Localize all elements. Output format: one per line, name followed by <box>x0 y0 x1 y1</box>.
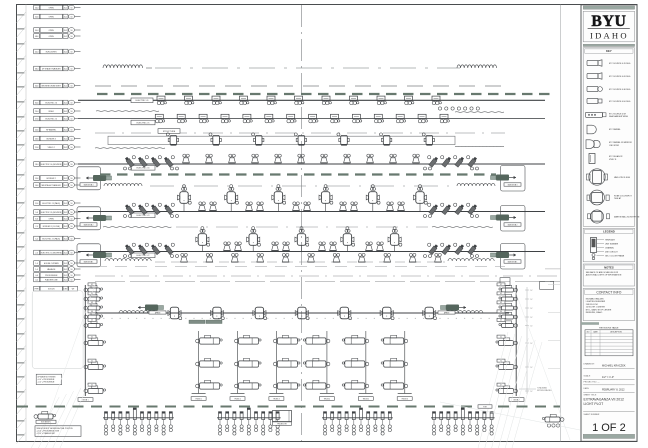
svg-text:10: 10 <box>71 212 73 214</box>
svg-text:18-0: 18-0 <box>35 164 38 166</box>
svg-text:PROSCENIUM: PROSCENIUM <box>45 275 58 277</box>
svg-text:20-1: 20-1 <box>64 218 67 220</box>
svg-text:MIDSTAGE TRAVELER: MIDSTAGE TRAVELER <box>42 184 62 187</box>
svg-text:43: 43 <box>91 302 93 304</box>
svg-text:TRUSS 3: TRUSS 3 <box>273 398 280 400</box>
svg-text:1'-6": 1'-6" <box>530 299 533 301</box>
svg-text:FEBRUARY 8, 2012: FEBRUARY 8, 2012 <box>602 389 625 392</box>
svg-text:20-1: 20-1 <box>64 238 67 240</box>
svg-text:20-1: 20-1 <box>64 279 67 281</box>
svg-text:ELECTRIC #6: ELECTRIC #6 <box>136 100 150 102</box>
svg-text:ELECTRIC #4: ELECTRIC #4 <box>137 168 151 170</box>
svg-text:BYU: BYU <box>591 13 626 30</box>
svg-text:7-0: 7-0 <box>35 226 38 228</box>
svg-text:DATE:: DATE: <box>584 387 590 390</box>
svg-text:10: 10 <box>71 147 73 149</box>
svg-text:MICHAEL KRACZEK: MICHAEL KRACZEK <box>586 298 605 301</box>
svg-text:STRUCTURE: STRUCTURE <box>163 131 176 133</box>
svg-text:10: 10 <box>71 263 73 265</box>
svg-text:41: 41 <box>91 284 93 286</box>
svg-text:44: 44 <box>91 311 93 313</box>
svg-text:1'-6": 1'-6" <box>530 326 533 328</box>
svg-text:BROKEN DRUM SKIRT: BROKEN DRUM SKIRT <box>42 85 62 87</box>
svg-text:10: 10 <box>71 51 73 53</box>
svg-text:CIE FILTER: CIE FILTER <box>609 145 620 147</box>
svg-text:OPEN: OPEN <box>49 218 55 220</box>
svg-text:20-1: 20-1 <box>64 111 67 113</box>
svg-text:10: 10 <box>71 118 73 120</box>
svg-text:1'-6": 1'-6" <box>530 308 533 310</box>
svg-text:SHEET TITLE:: SHEET TITLE: <box>584 395 598 397</box>
svg-text:52-6: 52-6 <box>35 16 38 18</box>
svg-text:20-1: 20-1 <box>64 185 67 187</box>
svg-text:CHANNEL: CHANNEL <box>605 246 614 249</box>
svg-text:41: 41 <box>500 284 502 286</box>
svg-text:208-555-1234: 208-555-1234 <box>586 304 598 306</box>
svg-text:0-0: 0-0 <box>35 279 38 281</box>
svg-text:RF BARREL: RF BARREL <box>46 128 56 131</box>
svg-text:20-1: 20-1 <box>64 138 67 140</box>
svg-text:10: 10 <box>71 185 73 187</box>
svg-text:20-1: 20-1 <box>64 164 67 166</box>
svg-text:ELECTRIC #1 (MOVERS): ELECTRIC #1 (MOVERS) <box>41 252 62 254</box>
svg-text:34-6: 34-6 <box>35 85 38 87</box>
svg-text:15-6: 15-6 <box>35 178 38 180</box>
svg-text:OPEN: OPEN <box>49 7 55 9</box>
svg-text:20-1: 20-1 <box>64 68 67 70</box>
svg-text:10: 10 <box>71 85 73 87</box>
svg-text:SEACHANGER WING: SEACHANGER WING <box>609 115 628 118</box>
svg-text:BORDER 2: BORDER 2 <box>47 178 56 180</box>
svg-text:VARI-LITE VL3000: VARI-LITE VL3000 <box>614 176 630 179</box>
svg-text:1'-6": 1'-6" <box>530 317 533 319</box>
svg-text:20-1: 20-1 <box>64 85 67 87</box>
svg-text:ADDITIONAL LIGHTS OF INFORMATI: ADDITIONAL LIGHTS OF INFORMATION <box>586 273 622 276</box>
svg-text:10: 10 <box>71 252 73 254</box>
svg-text:1'-6": 1'-6" <box>530 290 533 292</box>
svg-text:ETC PARNEL W/ MIRROR: ETC PARNEL W/ MIRROR <box>609 141 632 144</box>
svg-text:OPEN: OPEN <box>49 16 55 18</box>
svg-text:SIDE BOOM 1: SIDE BOOM 1 <box>84 261 94 263</box>
svg-text:ETC SOURCE 4-26 DEG: ETC SOURCE 4-26 DEG <box>609 76 631 78</box>
svg-text:44: 44 <box>500 311 502 313</box>
svg-text:GOODS: GOODS <box>48 289 55 291</box>
svg-text:10: 10 <box>71 203 73 205</box>
svg-text:10: 10 <box>71 138 73 140</box>
svg-text:ELECTRIC #4 (MOVERS): ELECTRIC #4 (MOVERS) <box>41 164 62 166</box>
svg-text:10: 10 <box>71 30 73 32</box>
svg-text:SIDE BOOM 2: SIDE BOOM 2 <box>84 224 94 226</box>
svg-text:BORDER 3: BORDER 3 <box>47 138 56 140</box>
svg-text:PROJECTOR: PROJECTOR <box>277 423 287 425</box>
svg-text:50-0: 50-0 <box>35 30 38 32</box>
svg-text:20-1: 20-1 <box>64 263 67 265</box>
svg-text:ETC PARNEL: ETC PARNEL <box>609 128 621 131</box>
svg-text:PROJECT NO. —: PROJECT NO. — <box>584 382 600 384</box>
svg-text:1/2" = 1'-0": 1/2" = 1'-0" <box>602 376 614 379</box>
svg-text:ELECTRIC #3: ELECTRIC #3 <box>137 215 151 217</box>
svg-text:OPEN: OPEN <box>49 36 55 38</box>
svg-text:BYU - IDAHO STOP CENTER: BYU - IDAHO STOP CENTER <box>586 308 612 311</box>
svg-text:SIDE BOOM 2: SIDE BOOM 2 <box>508 224 518 226</box>
svg-text:GEL / COLOR FRAME: GEL / COLOR FRAME <box>605 254 625 257</box>
svg-text:56-0: 56-0 <box>35 7 38 9</box>
svg-text:0-6: 0-6 <box>35 275 38 277</box>
svg-text:10: 10 <box>71 164 73 166</box>
svg-text:21-6: 21-6 <box>35 147 38 149</box>
svg-text:20-1: 20-1 <box>64 212 67 214</box>
svg-text:LEGEND: LEGEND <box>603 230 615 234</box>
svg-text:OPEN: OPEN <box>49 30 55 32</box>
svg-text:20-1: 20-1 <box>64 36 67 38</box>
svg-text:MICHAEL KRACZEK: MICHAEL KRACZEK <box>602 365 626 368</box>
svg-text:1 OF 2: 1 OF 2 <box>592 422 626 434</box>
svg-text:27-6: 27-6 <box>35 118 38 120</box>
svg-text:43: 43 <box>500 302 502 304</box>
svg-text:RUN LIGHTS: RUN LIGHTS <box>46 51 58 53</box>
svg-text:20-1: 20-1 <box>64 16 67 18</box>
svg-text:VALANCE: VALANCE <box>47 268 56 271</box>
svg-text:UNIT NUMBER: UNIT NUMBER <box>605 243 619 245</box>
svg-text:SHEET NUMBER: SHEET NUMBER <box>584 414 600 416</box>
svg-text:HOUSE CURTAIN: HOUSE CURTAIN <box>44 262 59 265</box>
svg-text:10: 10 <box>71 16 73 18</box>
svg-text:IDAHO: IDAHO <box>590 31 629 41</box>
svg-text:10 SOUTH 1 CENTER: 10 SOUTH 1 CENTER <box>586 307 606 309</box>
svg-text:FOH: FOH <box>483 406 486 408</box>
svg-text:PLASTER LINE: PLASTER LINE <box>45 278 58 281</box>
svg-text:20-1: 20-1 <box>64 269 67 271</box>
svg-text:DIST: DIST <box>64 289 68 291</box>
svg-text:10: 10 <box>71 7 73 9</box>
svg-text:20-1: 20-1 <box>64 275 67 277</box>
svg-text:700E AT: 700E AT <box>614 197 622 200</box>
svg-text:20-1: 20-1 <box>64 129 67 131</box>
svg-text:SCALE:: SCALE: <box>584 374 592 377</box>
svg-text:10: 10 <box>71 36 73 38</box>
svg-text:30-6: 30-6 <box>35 102 38 104</box>
svg-text:20-1: 20-1 <box>64 226 67 228</box>
svg-text:1'-6": 1'-6" <box>530 391 533 393</box>
svg-text:9-6: 9-6 <box>35 212 38 214</box>
svg-text:11-0: 11-0 <box>35 203 38 205</box>
svg-text:20-1: 20-1 <box>64 178 67 180</box>
svg-text:LIGHT PLOT: LIGHT PLOT <box>584 402 604 406</box>
svg-text:DIM / CIRCUIT: DIM / CIRCUIT <box>605 251 619 253</box>
svg-text:10: 10 <box>71 269 73 271</box>
svg-text:TRUSS 5: TRUSS 5 <box>363 398 370 400</box>
svg-text:WT: WT <box>72 289 75 291</box>
svg-text:23-6: 23-6 <box>35 138 38 140</box>
svg-text:5-0: 5-0 <box>35 238 38 240</box>
svg-text:10: 10 <box>71 111 73 113</box>
svg-text:38-0: 38-0 <box>35 68 38 70</box>
svg-text:20-1: 20-1 <box>64 147 67 149</box>
svg-text:51: 51 <box>500 336 502 338</box>
svg-text:ETC SELADOR: ETC SELADOR <box>609 155 623 158</box>
svg-text:20-1: 20-1 <box>64 51 67 53</box>
svg-text:LIGHTING DESIGNER: LIGHTING DESIGNER <box>586 301 606 303</box>
svg-text:TEMPLATE: TEMPLATE <box>605 238 616 241</box>
svg-text:SIDE BOOM 3: SIDE BOOM 3 <box>508 184 518 186</box>
svg-text:ELECTRIC #2: ELECTRIC #2 <box>137 255 151 257</box>
svg-text:1'-6": 1'-6" <box>530 343 533 345</box>
svg-text:ELECTRIC #5: ELECTRIC #5 <box>46 118 57 120</box>
svg-text:20-1: 20-1 <box>64 102 67 104</box>
svg-text:2-6: 2-6 <box>35 252 38 254</box>
svg-text:TRUSS 2: TRUSS 2 <box>234 398 241 400</box>
svg-text:10: 10 <box>71 178 73 180</box>
svg-text:51: 51 <box>91 360 93 362</box>
svg-text:ETC SOURCE 4-19 DEG: ETC SOURCE 4-19 DEG <box>609 63 631 65</box>
svg-text:44-0: 44-0 <box>35 51 38 53</box>
svg-text:UP STAGE TRAVELER: UP STAGE TRAVELER <box>42 67 61 70</box>
svg-text:ELECTRIC #3 (MOVERS): ELECTRIC #3 (MOVERS) <box>41 212 62 214</box>
svg-text:REXBURG, IDAHO: REXBURG, IDAHO <box>586 311 603 314</box>
svg-text:ELECTRIC #2 (PALS): ELECTRIC #2 (PALS) <box>42 237 60 240</box>
svg-text:10: 10 <box>71 218 73 220</box>
svg-text:VIDEO 2: VIDEO 2 <box>48 147 55 149</box>
svg-text:+0'-0" = PROSCENIUM: +0'-0" = PROSCENIUM <box>38 379 55 381</box>
svg-text:DESCRIPTION: DESCRIPTION <box>610 331 622 333</box>
svg-text:SIDE BOOM 4: SIDE BOOM 4 <box>84 184 94 186</box>
svg-text:10: 10 <box>71 226 73 228</box>
svg-text:29-0: 29-0 <box>35 111 38 113</box>
svg-text:ELECTRIC #3 (PALS): ELECTRIC #3 (PALS) <box>42 202 60 205</box>
svg-text:20-1: 20-1 <box>64 203 67 205</box>
svg-text:CONTACT INFO: CONTACT INFO <box>596 290 621 294</box>
svg-text:45: 45 <box>91 320 93 322</box>
svg-text:NOTES: NOTES <box>604 265 614 269</box>
svg-text:BOOM 1: BOOM 1 <box>83 399 89 401</box>
svg-text:10: 10 <box>71 275 73 277</box>
svg-text:25-6: 25-6 <box>35 129 38 131</box>
svg-text:48-6: 48-6 <box>35 36 38 38</box>
svg-text:+20'-0" = PROSCENIUM ZONE: +20'-0" = PROSCENIUM ZONE <box>37 431 59 433</box>
svg-text:ELECTRIC #6: ELECTRIC #6 <box>46 102 57 104</box>
svg-text:20-1: 20-1 <box>64 252 67 254</box>
svg-text:+0'-0" = PROSCENIUM: +0'-0" = PROSCENIUM <box>38 381 55 383</box>
svg-text:8-6: 8-6 <box>35 218 38 220</box>
svg-text:BOX BOOM L: BOX BOOM L <box>41 422 51 424</box>
svg-text:10: 10 <box>71 279 73 281</box>
svg-text:SIDE BOOM 1: SIDE BOOM 1 <box>508 261 518 263</box>
svg-text:1-6: 1-6 <box>35 263 38 265</box>
svg-text:20-1: 20-1 <box>64 118 67 120</box>
svg-text:51: 51 <box>91 336 93 338</box>
svg-text:ETC SOURCE 4-50 DEG: ETC SOURCE 4-50 DEG <box>609 101 631 103</box>
svg-text:1'-6": 1'-6" <box>530 367 533 369</box>
svg-text:42: 42 <box>500 293 502 295</box>
svg-text:ETC SOURCE 4-36 DEG: ETC SOURCE 4-36 DEG <box>609 89 631 91</box>
svg-text:1-0: 1-0 <box>35 269 38 271</box>
svg-text:10: 10 <box>71 102 73 104</box>
svg-text:10: 10 <box>71 238 73 240</box>
svg-text:SEE BACK OF AND SCHEDULE FOR: SEE BACK OF AND SCHEDULE FOR <box>586 271 619 274</box>
svg-text:TRUSS 6: TRUSS 6 <box>402 398 409 400</box>
svg-text:10: 10 <box>71 129 73 131</box>
svg-text:14-6: 14-6 <box>35 185 38 187</box>
svg-text:TRUSS 1: TRUSS 1 <box>195 398 202 400</box>
svg-text:REVISIONS TABLE: REVISIONS TABLE <box>599 326 619 329</box>
svg-text:ELECTRIC #5: ELECTRIC #5 <box>137 122 151 124</box>
svg-text:BORDER 1 (CLOSE): BORDER 1 (CLOSE) <box>43 226 60 228</box>
svg-text:TRUSS 4: TRUSS 4 <box>324 398 331 400</box>
svg-text:20-1: 20-1 <box>64 30 67 32</box>
svg-text:20-1: 20-1 <box>64 7 67 9</box>
svg-text:45: 45 <box>500 320 502 322</box>
svg-text:51: 51 <box>91 384 93 386</box>
svg-text:10: 10 <box>71 68 73 70</box>
svg-text:KEY: KEY <box>606 49 612 53</box>
svg-text:VIDEO: VIDEO <box>48 111 54 113</box>
svg-text:MARTIN MAC 250 KRYPTON: MARTIN MAC 250 KRYPTON <box>614 216 640 219</box>
svg-text:VIVID 11: VIVID 11 <box>609 159 616 161</box>
svg-text:EXTRAVAGANZA VII 2012: EXTRAVAGANZA VII 2012 <box>584 398 625 402</box>
svg-text:DRAWN BY:: DRAWN BY: <box>584 362 596 365</box>
